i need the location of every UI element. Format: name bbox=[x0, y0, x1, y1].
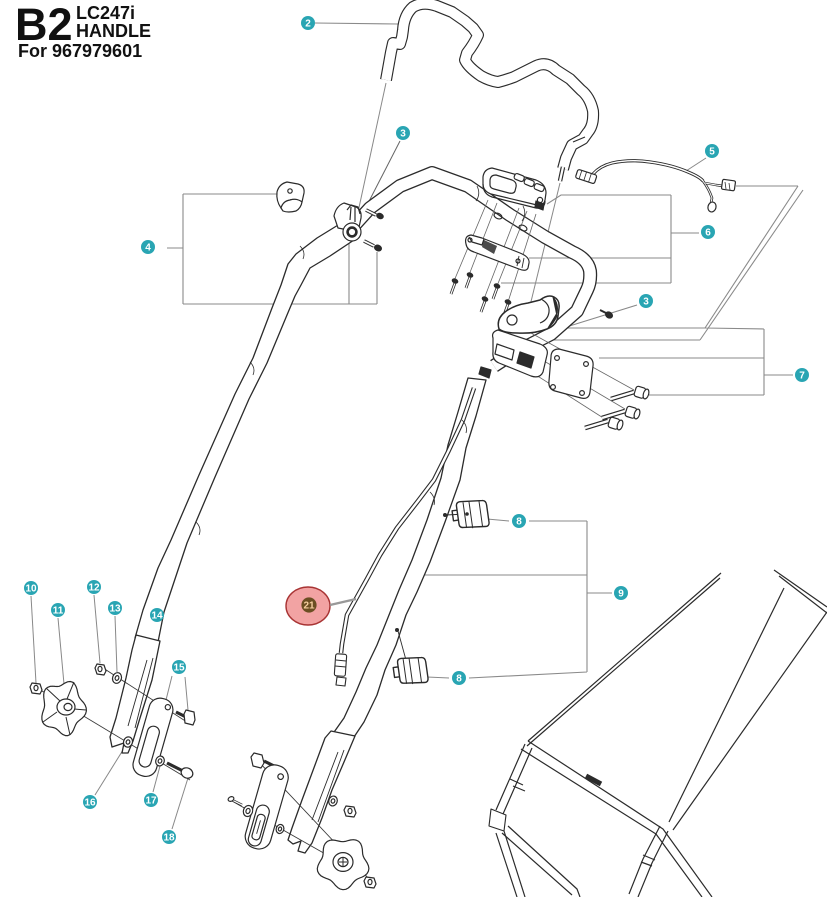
svg-text:10: 10 bbox=[25, 584, 37, 595]
svg-text:14: 14 bbox=[151, 611, 163, 622]
svg-text:11: 11 bbox=[53, 606, 64, 617]
svg-text:LC247i: LC247i bbox=[76, 3, 135, 23]
svg-text:6: 6 bbox=[705, 228, 711, 239]
svg-text:3: 3 bbox=[400, 129, 406, 140]
svg-text:15: 15 bbox=[173, 663, 185, 674]
svg-text:5: 5 bbox=[709, 147, 715, 158]
svg-text:9: 9 bbox=[618, 589, 624, 600]
svg-text:2: 2 bbox=[305, 19, 311, 30]
svg-text:17: 17 bbox=[145, 796, 157, 807]
svg-text:8: 8 bbox=[456, 674, 462, 685]
svg-text:13: 13 bbox=[109, 604, 121, 615]
svg-text:3: 3 bbox=[643, 297, 649, 308]
svg-text:7: 7 bbox=[799, 371, 805, 382]
svg-text:4: 4 bbox=[145, 243, 151, 254]
svg-text:12: 12 bbox=[88, 583, 100, 594]
svg-text:HANDLE: HANDLE bbox=[76, 21, 151, 41]
svg-text:8: 8 bbox=[516, 517, 522, 528]
svg-text:16: 16 bbox=[84, 798, 96, 809]
svg-text:18: 18 bbox=[163, 833, 175, 844]
svg-text:21: 21 bbox=[303, 601, 315, 612]
svg-text:For 967979601: For 967979601 bbox=[18, 41, 142, 61]
